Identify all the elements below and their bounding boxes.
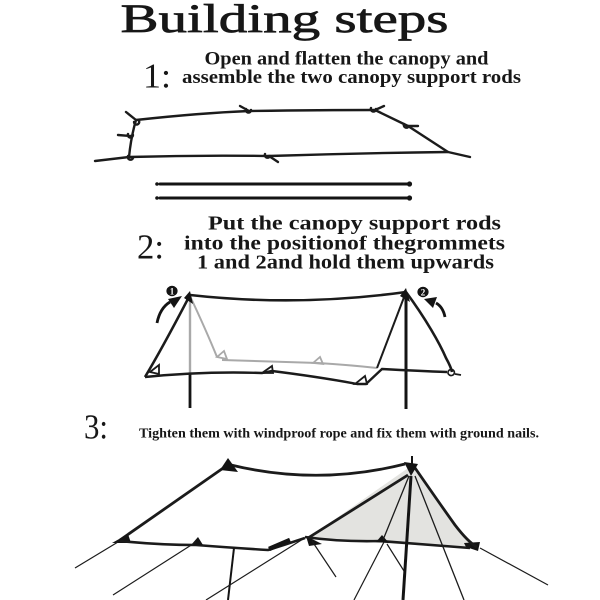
- svg-text:2:: 2:: [137, 228, 164, 267]
- svg-text:1:: 1:: [143, 57, 171, 96]
- svg-text:1: 1: [170, 287, 175, 297]
- svg-text:2: 2: [421, 288, 426, 298]
- svg-text:1 and 2and hold them upwards: 1 and 2and hold them upwards: [197, 252, 494, 274]
- svg-text:Tighten them with windproof ro: Tighten them with windproof rope and fix…: [139, 427, 539, 442]
- svg-text:assemble the two canopy suppor: assemble the two canopy support rods: [182, 67, 521, 88]
- svg-text:Put the canopy support rods: Put the canopy support rods: [208, 213, 501, 235]
- svg-text:Building steps: Building steps: [121, 0, 449, 41]
- svg-text:3:: 3:: [84, 408, 108, 447]
